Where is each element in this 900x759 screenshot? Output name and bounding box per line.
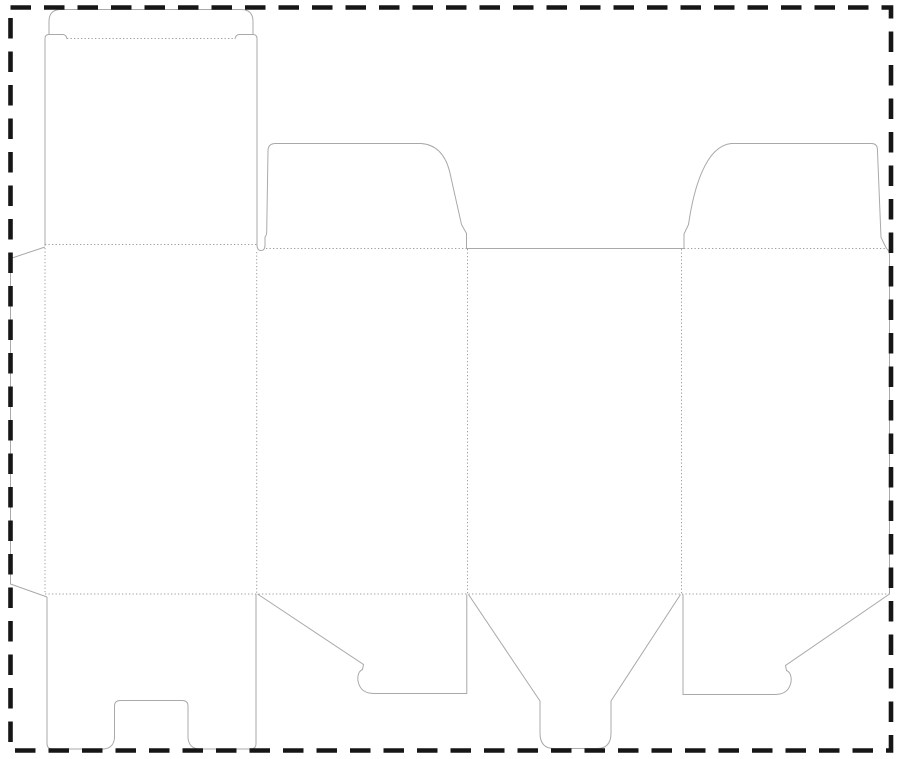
glue-flap-edge-cut-line [11,247,48,597]
panel1-right-edge-slot-and-top-dust-flap-left-cut-line [257,39,467,251]
panel4-right-edge-and-bottom-flap-right-cut-line [683,249,890,695]
tuck-flap-outline-cut-line [45,10,257,245]
bottom-lock-tongue-outline-cut-line [469,595,681,749]
dieline-page [0,0,900,759]
sheet-boundary-dashed-border [11,8,892,751]
top-dust-flap-right-outline-cut-line [684,144,887,249]
bottom-panel-with-notch-outline-cut-line [47,595,256,750]
dieline-drawing [0,0,900,759]
cut-lines-layer [11,10,890,750]
bottom-flap-left-outline-cut-line [258,594,467,694]
fold-lines-layer [45,39,890,595]
